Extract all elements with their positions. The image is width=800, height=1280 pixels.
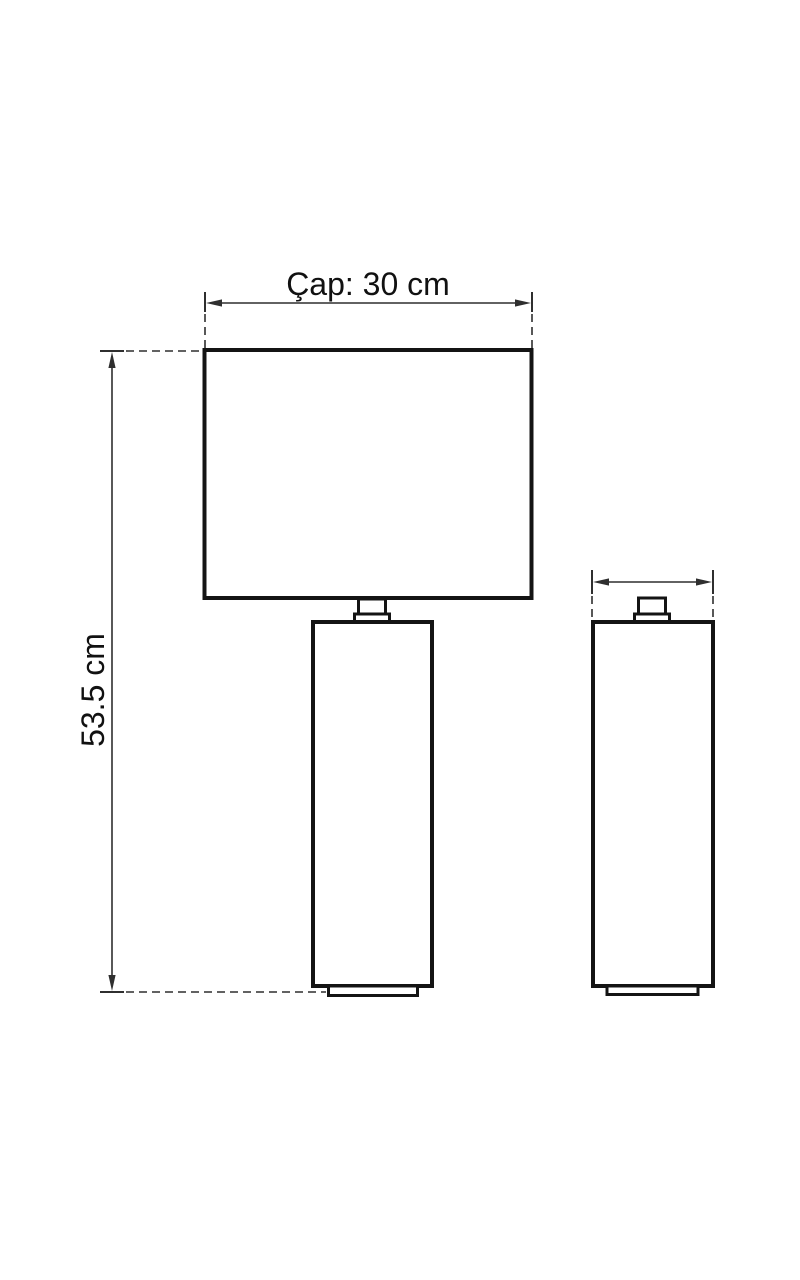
lampshade-outline	[205, 350, 532, 598]
side-arrow-left-icon	[593, 578, 609, 585]
side-base-plate	[607, 986, 698, 995]
front-base-plate	[329, 986, 418, 996]
front-lamp-body	[313, 622, 432, 986]
height-arrow-up-icon	[108, 352, 115, 368]
lamp-dimension-diagram: Çap: 30 cm 53.5 cm	[0, 0, 800, 1280]
lamp-technical-drawing: Çap: 30 cm 53.5 cm	[0, 0, 800, 1280]
front-view	[205, 350, 532, 996]
side-arrow-right-icon	[696, 578, 712, 585]
side-lamp-body	[593, 622, 713, 986]
side-view	[593, 598, 713, 995]
width-dimension-label: Çap: 30 cm	[286, 266, 450, 302]
height-arrow-down-icon	[108, 975, 115, 991]
side-neck	[639, 598, 666, 615]
width-arrow-left-icon	[206, 299, 222, 306]
width-arrow-right-icon	[515, 299, 531, 306]
height-dimension-label: 53.5 cm	[75, 633, 111, 747]
